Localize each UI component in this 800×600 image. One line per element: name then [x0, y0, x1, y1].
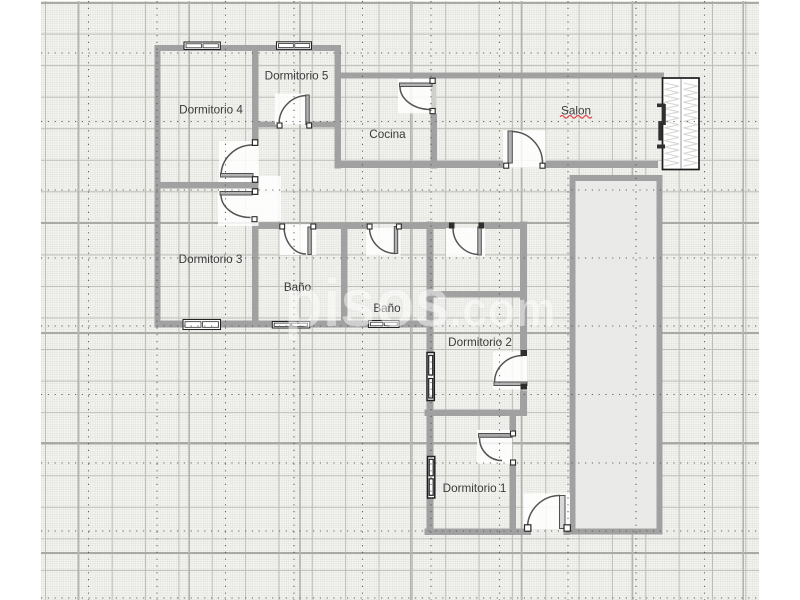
svg-text:Cocina: Cocina [369, 128, 406, 141]
svg-text:Dormitorio 2: Dormitorio 2 [448, 336, 512, 349]
svg-text:Dormitorio 1: Dormitorio 1 [443, 482, 507, 495]
svg-text:Dormitorio 3: Dormitorio 3 [179, 253, 243, 266]
svg-text:Dormitorio 5: Dormitorio 5 [265, 70, 329, 83]
svg-text:Dormitorio 4: Dormitorio 4 [179, 104, 243, 117]
